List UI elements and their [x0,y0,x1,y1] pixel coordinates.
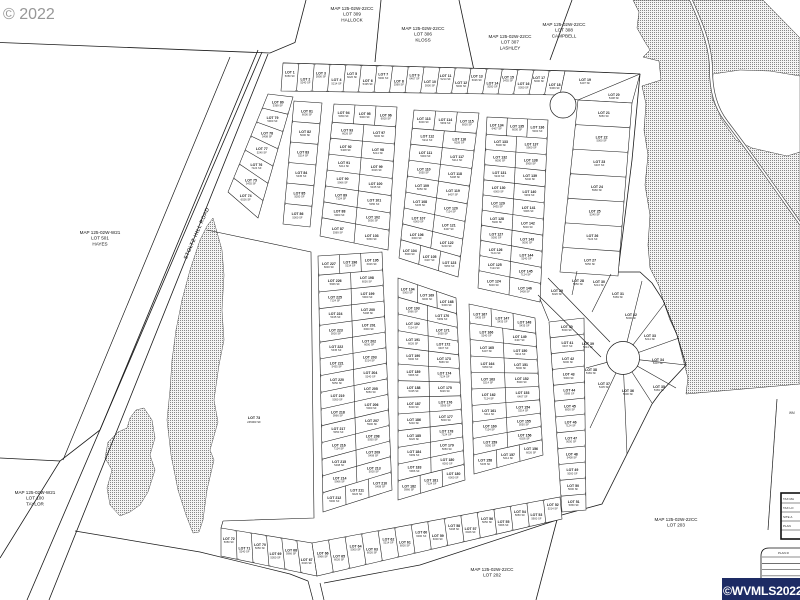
svg-text:SITE A: SITE A [783,515,792,519]
svg-text:5966 SF: 5966 SF [524,209,535,213]
svg-text:5214 SF: 5214 SF [339,164,350,168]
svg-text:245003 SF: 245003 SF [247,420,261,424]
svg-text:6000 SF: 6000 SF [462,123,473,127]
svg-text:5214 SF: 5214 SF [441,77,452,81]
svg-text:6026 SF: 6026 SF [334,557,345,561]
svg-text:5000 SF: 5000 SF [366,406,377,410]
svg-text:5240 SF: 5240 SF [494,174,505,178]
svg-text:5000 SF: 5000 SF [626,316,637,320]
svg-text:5900 SF: 5900 SF [496,143,507,147]
svg-text:6000 SF: 6000 SF [565,408,576,412]
svg-text:5900 SF: 5900 SF [367,422,378,426]
svg-text:5000 SF: 5000 SF [456,84,467,88]
svg-text:5435 SF: 5435 SF [331,348,342,352]
svg-text:5435 SF: 5435 SF [475,316,486,320]
svg-text:6000 SF: 6000 SF [448,475,459,479]
svg-text:©WVMLS2022: ©WVMLS2022 [723,584,800,598]
svg-text:5369 SF: 5369 SF [524,193,535,197]
svg-text:MAP 125-02W-22CC: MAP 125-02W-22CC [489,34,533,39]
svg-text:6026 SF: 6026 SF [367,551,378,555]
svg-text:5435 SF: 5435 SF [246,182,257,186]
svg-text:5214 SF: 5214 SF [452,158,463,162]
svg-text:5435 SF: 5435 SF [332,364,343,368]
svg-text:5000 SF: 5000 SF [522,241,533,245]
svg-text:5050 SF: 5050 SF [368,438,379,442]
svg-text:5900 SF: 5900 SF [517,380,528,384]
svg-text:LOT 307: LOT 307 [501,40,519,45]
svg-text:5369 SF: 5369 SF [442,303,453,307]
svg-text:5240 SF: 5240 SF [365,374,376,378]
svg-text:LOT 202: LOT 202 [483,573,501,578]
svg-text:5050 SF: 5050 SF [599,114,610,118]
svg-text:6000 SF: 6000 SF [512,128,523,132]
svg-text:5214 SF: 5214 SF [373,151,384,155]
svg-text:5369 SF: 5369 SF [440,404,451,408]
svg-text:5408 SF: 5408 SF [262,135,273,139]
svg-text:5000 SF: 5000 SF [300,133,311,137]
svg-text:6000 SF: 6000 SF [442,461,453,465]
svg-text:6026 SF: 6026 SF [241,197,252,201]
svg-text:5214 SF: 5214 SF [422,138,433,142]
svg-text:6407 SF: 6407 SF [492,126,503,130]
svg-text:6000 SF: 6000 SF [381,116,392,120]
svg-text:5050 SF: 5050 SF [339,114,350,118]
svg-text:5214 SF: 5214 SF [365,359,376,363]
svg-text:5408 SF: 5408 SF [450,175,461,179]
svg-text:KLOSS: KLOSS [415,37,430,42]
svg-text:5050 SF: 5050 SF [585,262,596,266]
svg-text:7124 SF: 7124 SF [408,325,419,329]
svg-text:7124 SF: 7124 SF [334,447,345,451]
svg-text:LOT 309: LOT 309 [343,12,361,17]
svg-text:5966 SF: 5966 SF [498,523,509,527]
svg-text:5214 SF: 5214 SF [645,337,656,341]
svg-text:5435 SF: 5435 SF [599,385,610,389]
svg-text:6026 SF: 6026 SF [352,492,363,496]
svg-text:6407 SF: 6407 SF [448,192,459,196]
svg-text:6026 SF: 6026 SF [342,132,353,136]
svg-text:5050 SF: 5050 SF [417,187,428,191]
svg-text:5000 SF: 5000 SF [567,471,578,475]
svg-text:5435 SF: 5435 SF [370,185,381,189]
svg-text:5050 SF: 5050 SF [444,264,455,268]
svg-text:5050 SF: 5050 SF [333,430,344,434]
svg-text:MAP 125-02W-W21: MAP 125-02W-W21 [80,230,121,235]
svg-text:5408 SF: 5408 SF [609,96,620,100]
svg-text:6407 SF: 6407 SF [517,394,528,398]
svg-text:5435 SF: 5435 SF [415,203,426,207]
svg-text:WM: WM [789,411,795,415]
svg-text:6026 SF: 6026 SF [472,78,483,82]
svg-text:TAYLOR: TAYLOR [26,501,44,506]
svg-text:6000 SF: 6000 SF [495,159,506,163]
svg-text:5966 SF: 5966 SF [335,480,346,484]
svg-text:5214 SF: 5214 SF [583,345,594,349]
svg-text:5900 SF: 5900 SF [425,83,436,87]
svg-text:5050 SF: 5050 SF [438,331,449,335]
svg-text:5050 SF: 5050 SF [255,546,266,550]
svg-text:6000 SF: 6000 SF [413,220,424,224]
svg-text:7124 SF: 7124 SF [491,251,502,255]
svg-text:5050 SF: 5050 SF [332,397,343,401]
svg-text:5214 SF: 5214 SF [484,412,495,416]
svg-text:5408 SF: 5408 SF [375,485,386,489]
svg-text:5435 SF: 5435 SF [519,324,530,328]
svg-text:5000 SF: 5000 SF [568,487,579,491]
svg-text:5000 SF: 5000 SF [623,392,634,396]
svg-text:7124 SF: 7124 SF [441,432,452,436]
svg-text:6407 SF: 6407 SF [594,163,605,167]
svg-text:MAP 125-02W-22CC: MAP 125-02W-22CC [471,567,515,572]
svg-text:5000 SF: 5000 SF [331,332,342,336]
svg-text:6407 SF: 6407 SF [653,361,664,365]
svg-text:6000 SF: 6000 SF [419,120,430,124]
svg-text:5050 SF: 5050 SF [518,85,529,89]
svg-text:5240 SF: 5240 SF [257,150,268,154]
svg-text:6407 SF: 6407 SF [482,349,493,353]
svg-text:5435 SF: 5435 SF [363,82,374,86]
svg-text:6000 SF: 6000 SF [433,537,444,541]
svg-text:5214 SF: 5214 SF [483,381,494,385]
svg-text:5369 SF: 5369 SF [394,83,405,87]
svg-text:6026 SF: 6026 SF [408,341,419,345]
svg-text:5900 SF: 5900 SF [405,252,416,256]
svg-text:5369 SF: 5369 SF [564,392,575,396]
svg-text:5900 SF: 5900 SF [526,161,537,165]
svg-text:5214 SF: 5214 SF [515,352,526,356]
svg-text:LOT 100: LOT 100 [26,496,44,501]
svg-text:5000 SF: 5000 SF [564,376,575,380]
svg-text:5966 SF: 5966 SF [409,469,420,473]
svg-text:5050 SF: 5050 SF [485,443,496,447]
svg-text:5000 SF: 5000 SF [329,499,340,503]
svg-text:5050 SF: 5050 SF [566,440,577,444]
svg-text:LOT 306: LOT 306 [414,32,432,37]
svg-text:6407 SF: 6407 SF [580,81,591,85]
svg-text:6407 SF: 6407 SF [409,76,420,80]
svg-text:5050 SF: 5050 SF [419,171,430,175]
svg-text:5050 SF: 5050 SF [442,447,453,451]
svg-text:5000 SF: 5000 SF [360,115,371,119]
svg-text:6026 SF: 6026 SF [526,450,537,454]
svg-text:6026 SF: 6026 SF [466,530,477,534]
svg-text:5050 SF: 5050 SF [224,540,235,544]
svg-text:5000 SF: 5000 SF [491,236,502,240]
svg-text:© 2022: © 2022 [3,6,55,23]
svg-text:5000 SF: 5000 SF [409,405,420,409]
svg-text:5408 SF: 5408 SF [449,527,460,531]
svg-text:7124 SF: 7124 SF [490,266,501,270]
svg-text:5050 SF: 5050 SF [369,202,380,206]
svg-text:5966 SF: 5966 SF [592,188,603,192]
svg-text:6407 SF: 6407 SF [562,344,573,348]
svg-text:MAP 125-02W-22CC: MAP 125-02W-22CC [655,517,699,522]
svg-text:5000 SF: 5000 SF [597,139,608,143]
svg-text:7124 SF: 7124 SF [485,428,496,432]
svg-text:6000 SF: 6000 SF [563,360,574,364]
svg-text:5214 SF: 5214 SF [298,154,309,158]
svg-text:HALLOCK: HALLOCK [341,17,363,22]
svg-text:6026 SF: 6026 SF [409,437,420,441]
svg-text:6026 SF: 6026 SF [454,141,465,145]
svg-text:5966 SF: 5966 SF [333,414,344,418]
svg-text:5050 SF: 5050 SF [332,381,343,385]
svg-text:5000 SF: 5000 SF [523,225,534,229]
svg-text:6026 SF: 6026 SF [302,561,313,565]
svg-text:6407 SF: 6407 SF [444,227,455,231]
svg-text:5050 SF: 5050 SF [519,423,530,427]
svg-text:5966 SF: 5966 SF [330,282,341,286]
svg-text:5000 SF: 5000 SF [420,154,431,158]
svg-text:LOT 203: LOT 203 [667,523,685,528]
svg-text:5050 SF: 5050 SF [270,555,281,559]
svg-text:5240 SF: 5240 SF [481,334,492,338]
svg-text:6026 SF: 6026 SF [367,262,378,266]
svg-text:5900 SF: 5900 SF [492,220,503,224]
svg-text:LASHLEY: LASHLEY [500,45,521,50]
svg-text:5240 SF: 5240 SF [590,213,601,217]
svg-text:MAP 125-02W-W21: MAP 125-02W-W21 [15,490,56,495]
svg-text:5900 SF: 5900 SF [362,295,373,299]
svg-text:6026 SF: 6026 SF [440,389,451,393]
svg-text:5214 SF: 5214 SF [518,408,529,412]
svg-text:5050 SF: 5050 SF [487,85,498,89]
svg-text:7124 SF: 7124 SF [566,424,577,428]
svg-text:5408 SF: 5408 SF [520,290,531,294]
svg-text:5000 SF: 5000 SF [441,418,452,422]
svg-text:5408 SF: 5408 SF [368,454,379,458]
svg-text:5369 SF: 5369 SF [273,103,284,107]
svg-text:5966 SF: 5966 SF [318,554,329,558]
svg-text:MAP 125-02W-22CC: MAP 125-02W-22CC [543,22,587,27]
svg-text:PLAN R: PLAN R [778,551,790,555]
svg-text:6000 SF: 6000 SF [494,189,505,193]
svg-text:5000 SF: 5000 SF [516,366,527,370]
svg-text:6026 SF: 6026 SF [372,168,383,172]
svg-text:6407 SF: 6407 SF [438,346,449,350]
svg-text:5369 SF: 5369 SF [654,388,665,392]
svg-text:6000 SF: 6000 SF [400,544,411,548]
svg-text:5050 SF: 5050 SF [294,195,305,199]
svg-text:5369 SF: 5369 SF [586,371,597,375]
svg-text:5214 SF: 5214 SF [331,81,342,85]
svg-text:5240 SF: 5240 SF [525,177,536,181]
svg-text:5050 SF: 5050 SF [482,365,493,369]
svg-text:5369 SF: 5369 SF [409,453,420,457]
svg-text:5369 SF: 5369 SF [440,121,451,125]
svg-text:LOT 308: LOT 308 [555,28,573,33]
svg-text:PLAN: PLAN [783,524,791,528]
svg-text:5966 SF: 5966 SF [408,373,419,377]
svg-text:6026 SF: 6026 SF [520,437,531,441]
svg-text:5435 SF: 5435 SF [480,462,491,466]
svg-text:5435 SF: 5435 SF [503,78,514,82]
svg-text:5240 SF: 5240 SF [442,244,453,248]
svg-text:5050 SF: 5050 SF [367,237,378,241]
svg-text:5050 SF: 5050 SF [285,74,296,78]
svg-text:6000 SF: 6000 SF [364,327,375,331]
svg-text:6000 SF: 6000 SF [324,265,335,269]
svg-text:5214 SF: 5214 SF [345,263,356,267]
svg-text:5050 SF: 5050 SF [482,520,493,524]
svg-text:5900 SF: 5900 SF [316,74,327,78]
svg-text:5369 SF: 5369 SF [613,295,624,299]
svg-text:5240 SF: 5240 SF [521,257,532,261]
svg-text:5435 SF: 5435 SF [330,315,341,319]
svg-text:5966 SF: 5966 SF [408,309,419,313]
svg-text:5214 SF: 5214 SF [548,506,559,510]
svg-text:6407 SF: 6407 SF [425,258,436,262]
svg-text:5000 SF: 5000 SF [489,283,500,287]
svg-text:7124 SF: 7124 SF [446,210,457,214]
svg-text:5000 SF: 5000 SF [532,129,543,133]
svg-text:5050 SF: 5050 SF [368,219,379,223]
svg-text:5000 SF: 5000 SF [351,548,362,552]
svg-text:5050 SF: 5050 SF [366,390,377,394]
svg-text:5000 SF: 5000 SF [292,215,303,219]
svg-text:5408 SF: 5408 SF [567,455,578,459]
svg-text:5240 SF: 5240 SF [239,550,250,554]
svg-text:5000 SF: 5000 SF [534,79,545,83]
svg-text:TAX LO: TAX LO [783,506,794,510]
svg-text:6000 SF: 6000 SF [412,236,423,240]
svg-text:5966 SF: 5966 SF [439,360,450,364]
svg-text:6026 SF: 6026 SF [552,292,563,296]
svg-text:7124 SF: 7124 SF [484,396,495,400]
svg-text:5050 SF: 5050 SF [573,282,584,286]
svg-text:5408 SF: 5408 SF [334,463,345,467]
svg-text:6000 SF: 6000 SF [422,297,433,301]
svg-text:6000 SF: 6000 SF [416,534,427,538]
svg-text:5408 SF: 5408 SF [341,148,352,152]
svg-text:7124 SF: 7124 SF [426,481,437,485]
svg-text:5435 SF: 5435 SF [493,205,504,209]
svg-text:5050 SF: 5050 SF [569,503,580,507]
svg-text:LOT 501: LOT 501 [91,236,109,241]
svg-text:7124 SF: 7124 SF [439,375,450,379]
svg-text:5240 SF: 5240 SF [300,81,311,85]
svg-text:5900 SF: 5900 SF [526,146,537,150]
svg-text:HAYES: HAYES [92,241,107,246]
svg-text:5900 SF: 5900 SF [531,516,542,520]
svg-text:MAP 125-02W-22CC: MAP 125-02W-22CC [402,26,446,31]
svg-text:CAMPBELL: CAMPBELL [552,33,577,38]
svg-text:5369 SF: 5369 SF [550,86,561,90]
svg-text:5000 SF: 5000 SF [374,134,385,138]
svg-text:7124 SF: 7124 SF [521,272,532,276]
svg-text:6000 SF: 6000 SF [302,112,313,116]
svg-text:5000 SF: 5000 SF [562,328,573,332]
svg-text:5966 SF: 5966 SF [404,488,415,492]
svg-text:7124 SF: 7124 SF [330,299,341,303]
svg-text:5000 SF: 5000 SF [403,291,414,295]
svg-text:TAX MA: TAX MA [783,497,794,501]
svg-text:5900 SF: 5900 SF [267,119,278,123]
svg-text:7124 SF: 7124 SF [336,197,347,201]
svg-text:5050 SF: 5050 SF [515,513,526,517]
svg-text:5240 SF: 5240 SF [409,421,420,425]
svg-text:5900 SF: 5900 SF [334,213,345,217]
svg-text:6026 SF: 6026 SF [362,279,373,283]
svg-text:6407 SF: 6407 SF [515,338,526,342]
svg-text:6000 SF: 6000 SF [364,343,375,347]
svg-text:5435 SF: 5435 SF [409,389,420,393]
svg-text:5369 SF: 5369 SF [437,317,448,321]
svg-text:7124 SF: 7124 SF [587,237,598,241]
svg-text:5966 SF: 5966 SF [338,180,349,184]
svg-text:5000 SF: 5000 SF [408,357,419,361]
svg-text:MAP 125-02W-22CC: MAP 125-02W-22CC [331,6,375,11]
svg-text:7124 SF: 7124 SF [251,166,262,170]
svg-text:5000 SF: 5000 SF [378,76,389,80]
svg-text:5435 SF: 5435 SF [296,174,307,178]
svg-text:5214 SF: 5214 SF [383,541,394,545]
svg-text:5214 SF: 5214 SF [594,283,605,287]
svg-text:5966 SF: 5966 SF [286,552,297,556]
svg-text:6026 SF: 6026 SF [347,75,358,79]
svg-text:5214 SF: 5214 SF [503,456,514,460]
svg-text:5000 SF: 5000 SF [369,469,380,473]
svg-text:5435 SF: 5435 SF [497,320,508,324]
svg-text:5369 SF: 5369 SF [333,230,344,234]
svg-text:5408 SF: 5408 SF [363,311,374,315]
